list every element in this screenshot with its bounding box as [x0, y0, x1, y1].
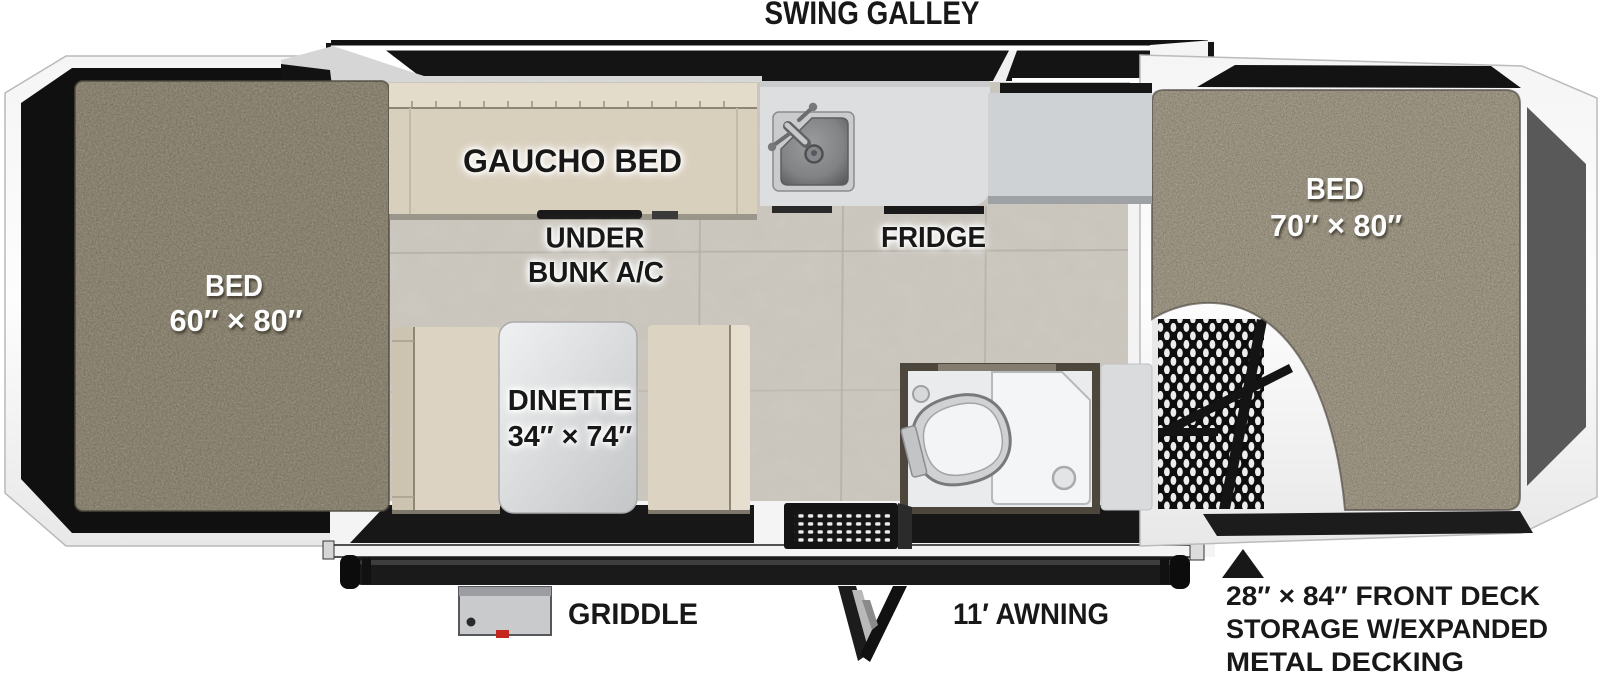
- svg-text:GRIDDLE: GRIDDLE: [568, 598, 698, 631]
- svg-text:FRIDGE: FRIDGE: [881, 222, 986, 254]
- svg-text:STORAGE W/EXPANDED: STORAGE W/EXPANDED: [1226, 614, 1548, 644]
- svg-text:SWING GALLEY: SWING GALLEY: [765, 0, 980, 31]
- svg-text:60″ × 80″: 60″ × 80″: [170, 303, 303, 338]
- svg-text:DINETTE: DINETTE: [508, 385, 633, 417]
- svg-text:UNDER: UNDER: [546, 223, 645, 255]
- svg-text:GAUCHO BED: GAUCHO BED: [463, 143, 682, 179]
- svg-text:70″ × 80″: 70″ × 80″: [1270, 208, 1402, 243]
- svg-text:34″ × 74″: 34″ × 74″: [508, 421, 633, 453]
- svg-text:BUNK A/C: BUNK A/C: [528, 257, 664, 289]
- svg-text:METAL DECKING: METAL DECKING: [1226, 647, 1464, 676]
- svg-text:BED: BED: [1306, 172, 1364, 206]
- svg-text:11′ AWNING: 11′ AWNING: [953, 598, 1109, 631]
- svg-text:28″ × 84″ FRONT DECK: 28″ × 84″ FRONT DECK: [1226, 581, 1541, 611]
- svg-text:BED: BED: [205, 269, 263, 303]
